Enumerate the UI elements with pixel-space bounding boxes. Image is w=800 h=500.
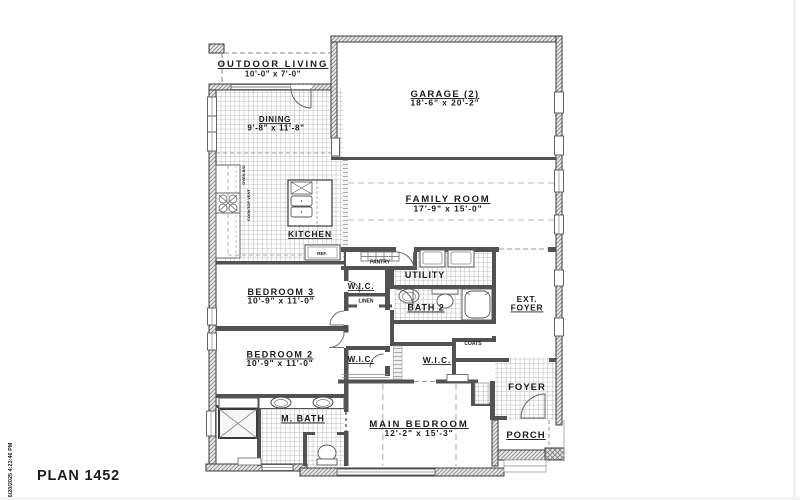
svg-text:18'-6" x 20'-2": 18'-6" x 20'-2" [410,98,479,108]
svg-text:12'-2" x 15'-3": 12'-2" x 15'-3" [384,428,453,438]
svg-text:PORCH: PORCH [506,430,545,441]
svg-text:10'-9" x 11'-0": 10'-9" x 11'-0" [247,296,314,306]
svg-text:LINEN: LINEN [359,299,374,305]
svg-text:FOYER: FOYER [511,303,544,313]
svg-text:COOKTOP VENT: COOKTOP VENT [246,189,251,221]
svg-text:PANTRY: PANTRY [370,260,391,266]
svg-text:W.I.C.: W.I.C. [348,282,375,291]
svg-text:17'-9" x 15'-0": 17'-9" x 15'-0" [413,204,482,214]
svg-text:BATH 2: BATH 2 [407,303,444,313]
svg-text:9'-8" x 11'-8": 9'-8" x 11'-8" [247,124,304,133]
svg-text:W.I.C.: W.I.C. [348,355,375,364]
svg-text:10'-9" x 11'-0": 10'-9" x 11'-0" [246,358,313,368]
svg-text:6/20/2025 4:23:46 PM: 6/20/2025 4:23:46 PM [8,442,14,497]
svg-text:UTILITY: UTILITY [405,270,445,280]
svg-text:COATS: COATS [464,341,482,347]
svg-text:FOYER: FOYER [508,382,546,393]
svg-text:OVEN B/O: OVEN B/O [241,165,246,185]
svg-text:PLAN 1452: PLAN 1452 [37,468,120,484]
svg-text:KITCHEN: KITCHEN [288,229,332,239]
svg-text:10'-0" x 7'-0": 10'-0" x 7'-0" [245,70,301,79]
svg-text:M. BATH: M. BATH [281,414,325,424]
svg-text:W.I.C.: W.I.C. [423,355,452,365]
svg-text:OUTDOOR LIVING: OUTDOOR LIVING [218,59,329,70]
svg-text:REF.: REF. [317,251,327,256]
